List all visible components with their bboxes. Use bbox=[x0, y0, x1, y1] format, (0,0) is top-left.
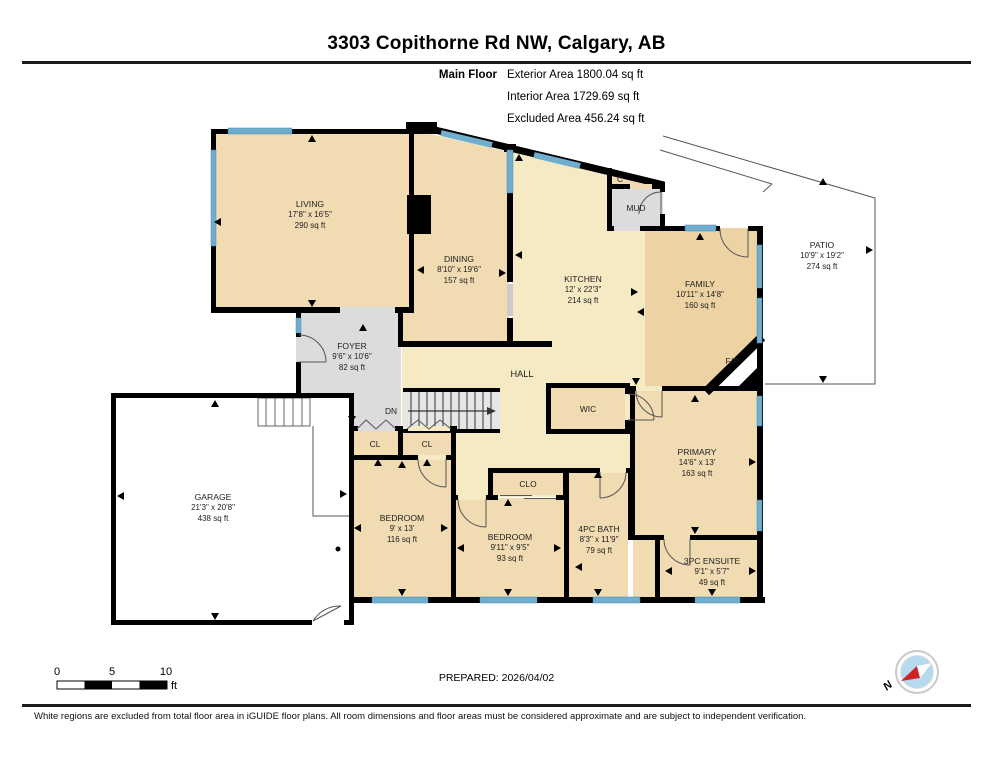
closet-bedroom-label: CLO bbox=[519, 479, 536, 489]
room-label-ensuite: 3PC ENSUITE 9'1" x 5'7" 49 sq ft bbox=[684, 556, 740, 588]
room-label-bedroom-1: BEDROOM 9' x 13' 116 sq ft bbox=[380, 513, 424, 545]
closet-right-label: CL bbox=[422, 439, 433, 449]
room-label-foyer: FOYER 9'6" x 10'6" 82 sq ft bbox=[332, 341, 371, 373]
room-label-dining: DINING 8'10" x 19'6" 157 sq ft bbox=[437, 254, 481, 286]
closet-left-label: CL bbox=[370, 439, 381, 449]
room-label-garage: GARAGE 21'3" x 20'8" 438 sq ft bbox=[191, 492, 235, 524]
mud-label: MUD bbox=[626, 203, 645, 213]
room-label-primary: PRIMARY 14'6" x 13' 163 sq ft bbox=[678, 447, 717, 479]
floorplan-page: 3303 Copithorne Rd NW, Calgary, AB Main … bbox=[0, 0, 993, 768]
garage-floor-drain bbox=[336, 547, 341, 552]
room-label-bedroom-2: BEDROOM 9'11" x 9'5" 93 sq ft bbox=[488, 532, 532, 564]
disclaimer-text: White regions are excluded from total fl… bbox=[34, 711, 964, 722]
floorplan-canvas bbox=[0, 0, 993, 768]
room-label-living: LIVING 17'8" x 16'5" 290 sq ft bbox=[288, 199, 332, 231]
room-label-bath: 4PC BATH 8'3" x 11'9" 79 sq ft bbox=[578, 524, 619, 556]
hall-label: HALL bbox=[511, 369, 534, 379]
stairs-garage bbox=[258, 398, 310, 426]
prepared-date: PREPARED: 2026/04/02 bbox=[0, 672, 993, 684]
room-label-kitchen: KITCHEN 12' x 22'3" 214 sq ft bbox=[564, 274, 602, 306]
room-label-family: FAMILY 10'11" x 14'8" 160 sq ft bbox=[676, 279, 724, 311]
room-label-patio: PATIO 10'9" x 19'2" 274 sq ft bbox=[800, 240, 844, 272]
closet-c-label: C bbox=[617, 174, 623, 184]
wic-label: WIC bbox=[580, 404, 596, 414]
fireplace-label: F/P bbox=[725, 356, 738, 366]
stairs-down-label: DN bbox=[385, 406, 397, 416]
